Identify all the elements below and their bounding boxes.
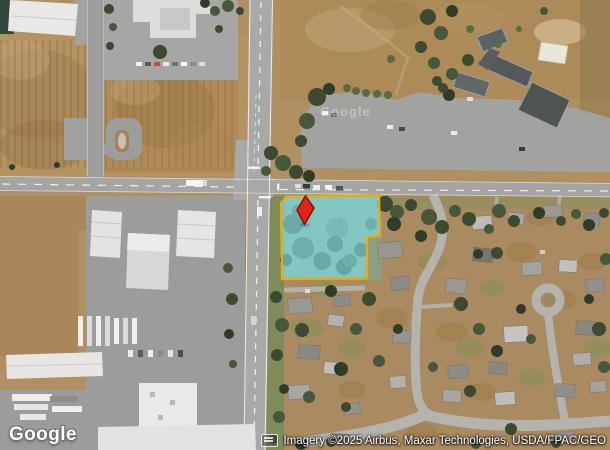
map-viewport[interactable]: Google Google Imagery ©2025 Airbus, Maxa…	[0, 0, 610, 450]
google-watermark-faint: Google	[320, 104, 371, 119]
attribution-text: Imagery ©2025 Airbus, Maxar Technologies…	[283, 435, 606, 447]
satellite-imagery[interactable]	[0, 0, 610, 450]
google-logo[interactable]: Google	[9, 424, 77, 446]
map-attribution: Imagery ©2025 Airbus, Maxar Technologies…	[261, 434, 606, 447]
keyboard-shortcuts-icon[interactable]	[261, 434, 278, 447]
